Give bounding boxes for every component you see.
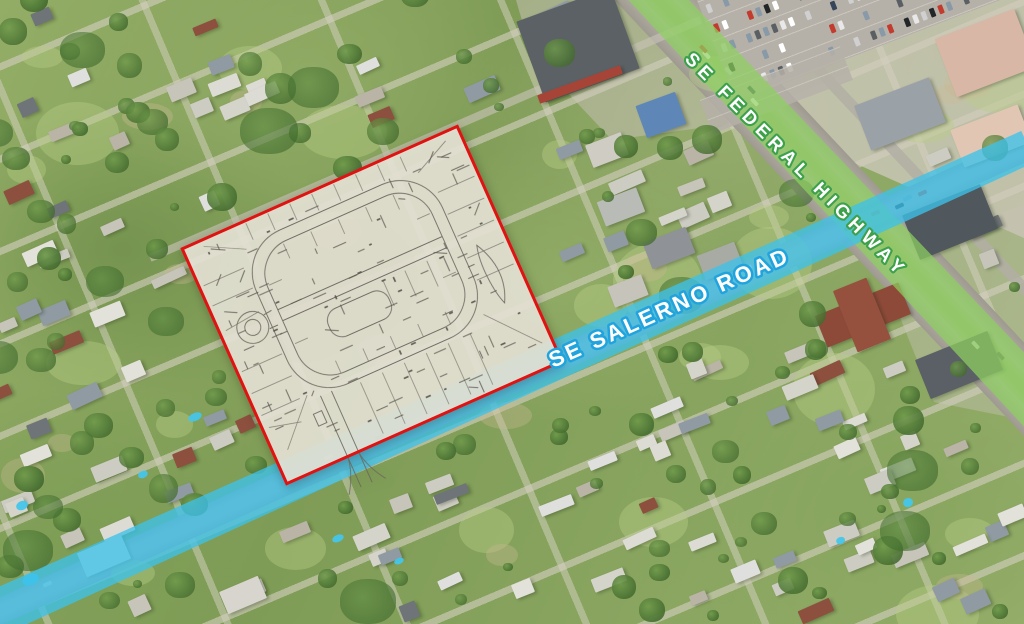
- tree-canopy: [639, 598, 665, 622]
- parked-car: [829, 23, 837, 33]
- parked-car: [771, 23, 779, 33]
- house-roof: [603, 231, 628, 253]
- tree-canopy: [58, 268, 72, 281]
- tree-cluster: [60, 32, 105, 68]
- tree-canopy: [626, 219, 657, 246]
- car-on-road: [43, 580, 53, 587]
- parked-car: [945, 1, 953, 11]
- tree-cluster: [240, 108, 298, 154]
- parked-car: [830, 1, 838, 11]
- tree-canopy: [614, 135, 638, 158]
- parked-car: [746, 33, 754, 43]
- car-on-road: [903, 195, 913, 202]
- tree-canopy: [692, 125, 722, 153]
- tree-canopy: [666, 465, 686, 483]
- house-roof: [925, 147, 951, 167]
- house-roof: [883, 360, 906, 378]
- tree-canopy: [682, 342, 702, 362]
- tree-canopy: [900, 386, 920, 404]
- parked-car: [721, 20, 729, 30]
- parked-car: [722, 0, 730, 7]
- house-roof: [833, 437, 861, 460]
- grass-patch: [749, 205, 789, 229]
- tree-canopy: [2, 147, 31, 170]
- house-roof: [766, 404, 790, 425]
- parked-car: [887, 24, 895, 34]
- tree-canopy: [992, 604, 1008, 620]
- tree-canopy: [367, 118, 399, 146]
- house-roof: [997, 503, 1024, 527]
- tree-canopy: [47, 333, 64, 350]
- tree-canopy: [205, 388, 227, 406]
- parked-car: [713, 23, 721, 33]
- tree-canopy: [629, 413, 654, 436]
- tree-canopy: [593, 128, 605, 138]
- parked-car: [929, 8, 937, 18]
- tree-canopy: [99, 592, 120, 610]
- tree-canopy: [503, 563, 513, 571]
- tree-canopy: [707, 610, 719, 621]
- swimming-pool: [21, 571, 41, 588]
- tree-canopy: [806, 213, 816, 222]
- house-roof: [193, 18, 219, 36]
- parked-car: [762, 26, 770, 36]
- house-roof: [511, 578, 535, 600]
- house-roof: [352, 522, 391, 551]
- tree-cluster: [340, 579, 396, 624]
- house-roof: [943, 440, 968, 458]
- parked-car: [788, 17, 796, 27]
- tree-canopy: [799, 301, 827, 327]
- parked-car: [746, 10, 754, 20]
- tree-canopy: [109, 13, 128, 30]
- tree-canopy: [392, 571, 408, 586]
- tree-canopy: [149, 474, 179, 503]
- tree-canopy: [775, 366, 790, 379]
- sand-patch: [486, 544, 518, 566]
- house-roof: [67, 68, 91, 88]
- tree-canopy: [455, 594, 466, 605]
- swimming-pool: [137, 469, 149, 480]
- tree-cluster: [0, 341, 18, 374]
- parked-car: [729, 39, 737, 49]
- house-roof: [26, 417, 53, 440]
- tree-cluster: [779, 179, 815, 207]
- tree-cluster: [0, 119, 13, 147]
- tree-canopy: [165, 572, 195, 598]
- tree-canopy: [1009, 282, 1020, 292]
- tree-cluster: [880, 511, 930, 551]
- tree-canopy: [7, 272, 28, 292]
- parked-car: [855, 0, 863, 1]
- tree-canopy: [70, 431, 94, 455]
- swimming-pool: [331, 533, 344, 544]
- car-on-road: [698, 45, 707, 54]
- parked-car: [797, 0, 805, 1]
- swimming-pool: [187, 411, 203, 424]
- house-roof: [688, 533, 717, 553]
- tree-canopy: [751, 512, 777, 536]
- house-roof: [89, 300, 126, 328]
- tree-canopy: [612, 575, 636, 599]
- house-roof: [587, 451, 617, 471]
- car-on-road: [844, 224, 854, 231]
- tree-canopy: [590, 478, 603, 489]
- parked-car: [896, 0, 904, 8]
- tree-canopy: [618, 265, 634, 279]
- tree-canopy: [932, 552, 946, 565]
- tree-canopy: [401, 0, 429, 7]
- tree-canopy: [733, 466, 751, 484]
- house-roof: [3, 180, 35, 205]
- parked-car: [870, 30, 878, 40]
- tree-canopy: [877, 505, 886, 513]
- house-roof: [121, 359, 147, 382]
- parked-car: [920, 11, 928, 21]
- parked-car: [761, 49, 769, 59]
- parked-car: [903, 17, 911, 27]
- tree-canopy: [808, 340, 829, 358]
- house-roof: [538, 494, 575, 517]
- house-roof: [677, 177, 706, 197]
- tree-canopy: [170, 203, 179, 211]
- tree-canopy: [970, 423, 980, 433]
- house-roof: [17, 97, 40, 118]
- tree-canopy: [839, 424, 857, 441]
- tree-canopy: [649, 564, 670, 581]
- tree-canopy: [712, 440, 739, 462]
- house-roof: [0, 317, 18, 334]
- tree-canopy: [0, 18, 27, 44]
- tree-canopy: [893, 406, 924, 436]
- house-roof: [797, 598, 834, 624]
- tree-cluster: [659, 277, 704, 313]
- tree-canopy: [245, 456, 267, 474]
- parked-car: [755, 7, 763, 17]
- tree-canopy: [181, 493, 208, 517]
- aerial-map-canvas[interactable]: SE FEDERAL HIGHWAY SE SALERNO ROAD: [0, 0, 1024, 624]
- tree-cluster: [148, 307, 183, 335]
- house-roof: [355, 86, 385, 108]
- parked-car: [878, 27, 886, 37]
- parked-car: [778, 43, 786, 53]
- parked-car: [720, 42, 728, 52]
- parked-car: [705, 3, 713, 13]
- tree-canopy: [982, 135, 1008, 161]
- tree-cluster: [288, 67, 339, 108]
- tree-canopy: [483, 78, 499, 93]
- tree-canopy: [589, 406, 601, 416]
- car-on-road: [895, 202, 905, 209]
- tree-canopy: [14, 466, 44, 492]
- house-roof: [730, 559, 761, 583]
- house-roof: [166, 78, 197, 103]
- tree-cluster: [86, 266, 124, 297]
- house-roof: [437, 571, 463, 590]
- tree-canopy: [207, 183, 237, 212]
- tree-canopy: [338, 501, 352, 514]
- house-roof: [678, 413, 711, 435]
- tree-canopy: [726, 396, 738, 406]
- house-roof: [399, 600, 421, 622]
- parked-car: [763, 4, 771, 14]
- house-roof: [127, 594, 152, 617]
- tree-canopy: [72, 122, 88, 136]
- building-roof: [902, 184, 998, 260]
- parked-car: [804, 10, 812, 20]
- parked-car: [862, 10, 870, 20]
- tree-canopy: [658, 346, 678, 363]
- parked-car: [962, 0, 970, 5]
- house-roof: [689, 591, 708, 606]
- tree-canopy: [657, 136, 683, 160]
- house-roof: [209, 429, 235, 451]
- house-roof: [66, 382, 102, 410]
- parked-car: [754, 30, 762, 40]
- tree-canopy: [950, 361, 967, 376]
- building-roof: [635, 92, 686, 138]
- parked-car: [837, 20, 845, 30]
- tree-canopy: [552, 418, 569, 434]
- tree-canopy: [456, 49, 472, 64]
- tree-canopy: [735, 537, 747, 547]
- tree-canopy: [649, 540, 669, 557]
- tree-canopy: [318, 569, 337, 588]
- parked-car: [779, 20, 787, 30]
- tree-canopy: [812, 587, 827, 599]
- car-on-road: [917, 189, 927, 196]
- house-roof: [979, 248, 1000, 269]
- tree-canopy: [961, 458, 979, 475]
- tree-canopy: [105, 152, 129, 173]
- tree-canopy: [37, 247, 61, 271]
- tree-canopy: [238, 52, 262, 76]
- house-roof: [389, 493, 413, 514]
- parked-car: [853, 37, 861, 47]
- tree-cluster: [887, 450, 937, 490]
- parked-car: [846, 0, 854, 4]
- tree-canopy: [119, 447, 144, 467]
- tree-canopy: [61, 155, 71, 165]
- tree-cluster: [3, 530, 53, 570]
- house-roof: [172, 447, 197, 469]
- house-roof: [650, 396, 684, 418]
- tree-canopy: [494, 103, 503, 111]
- parked-car: [772, 0, 780, 10]
- house-roof: [559, 243, 585, 263]
- tree-canopy: [27, 200, 54, 224]
- tree-canopy: [26, 348, 55, 372]
- car-on-road: [870, 210, 880, 217]
- tree-canopy: [700, 479, 716, 495]
- tree-canopy: [337, 44, 362, 65]
- tree-canopy: [544, 39, 575, 67]
- tree-canopy: [718, 554, 730, 563]
- tree-canopy: [663, 77, 673, 85]
- house-roof: [203, 410, 227, 427]
- house-roof: [0, 384, 13, 401]
- tree-canopy: [146, 239, 168, 259]
- house-roof: [189, 96, 214, 118]
- house-roof: [37, 300, 71, 326]
- parked-car: [937, 4, 945, 14]
- grass-patch: [22, 46, 63, 68]
- tree-canopy: [57, 214, 76, 233]
- house-roof: [235, 414, 256, 434]
- tree-canopy: [212, 370, 226, 383]
- tree-canopy: [155, 128, 179, 151]
- house-roof: [100, 217, 125, 236]
- tree-canopy: [778, 567, 808, 595]
- tree-canopy: [133, 580, 142, 588]
- parked-car: [912, 14, 920, 24]
- building-roof: [219, 576, 267, 615]
- house-roof: [707, 191, 732, 214]
- swimming-pool: [902, 496, 915, 508]
- tree-canopy: [117, 53, 142, 78]
- tree-cluster: [33, 495, 63, 519]
- tree-canopy: [156, 399, 175, 417]
- tree-canopy: [839, 512, 857, 526]
